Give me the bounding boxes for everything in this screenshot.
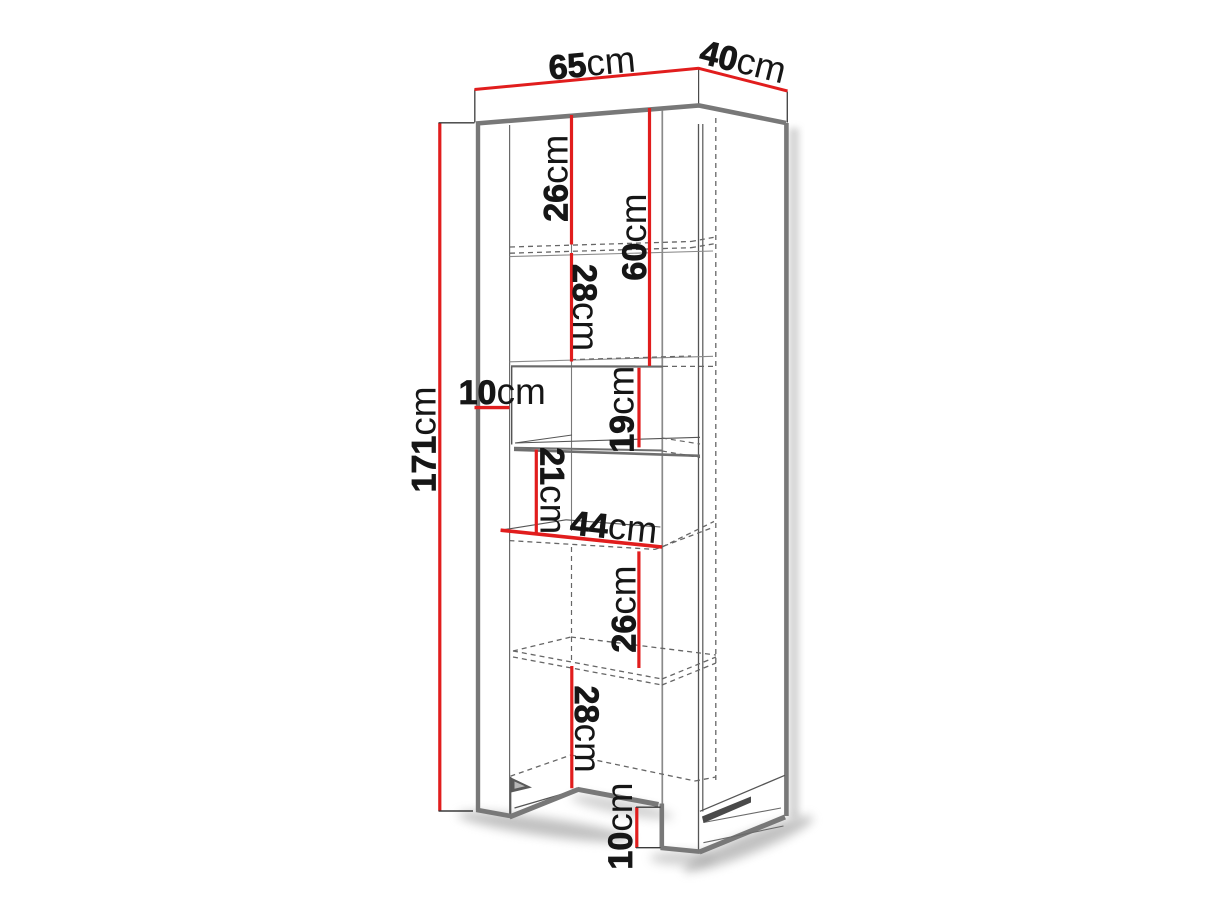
svg-text:10cm: 10cm [459, 371, 546, 412]
svg-text:28cm: 28cm [567, 686, 608, 773]
svg-text:10cm: 10cm [599, 782, 640, 869]
svg-text:60cm: 60cm [613, 193, 654, 280]
svg-text:21cm: 21cm [533, 447, 574, 534]
svg-text:26cm: 26cm [534, 135, 575, 222]
svg-text:171cm: 171cm [403, 386, 444, 492]
svg-text:40cm: 40cm [696, 30, 790, 91]
svg-text:26cm: 26cm [603, 565, 644, 652]
svg-text:28cm: 28cm [565, 264, 606, 351]
svg-text:44cm: 44cm [568, 501, 659, 551]
svg-text:19cm: 19cm [600, 366, 641, 453]
svg-text:65cm: 65cm [547, 39, 638, 88]
